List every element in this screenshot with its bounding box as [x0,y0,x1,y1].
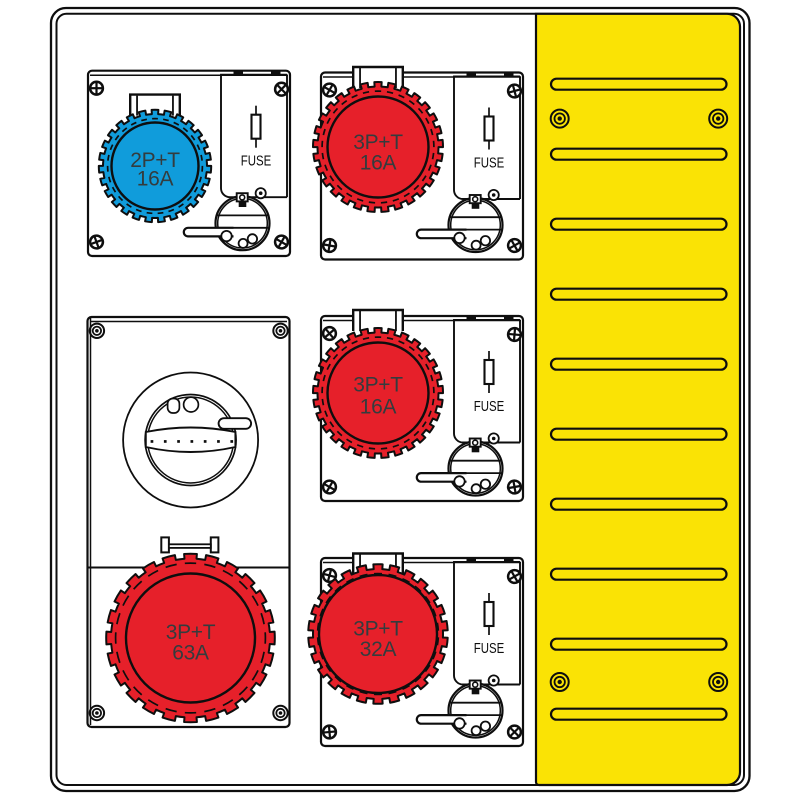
svg-text:32A: 32A [360,638,397,661]
svg-text:3P+T: 3P+T [353,617,403,640]
svg-text:16A: 16A [360,152,397,175]
svg-text:16A: 16A [360,395,397,418]
svg-text:FUSE: FUSE [474,155,505,171]
svg-text:3P+T: 3P+T [353,374,403,397]
svg-text:3P+T: 3P+T [166,621,216,644]
svg-text:FUSE: FUSE [474,399,505,415]
svg-text:16A: 16A [137,168,174,191]
svg-text:63A: 63A [172,642,209,665]
svg-text:FUSE: FUSE [241,154,272,170]
svg-text:FUSE: FUSE [474,641,505,657]
